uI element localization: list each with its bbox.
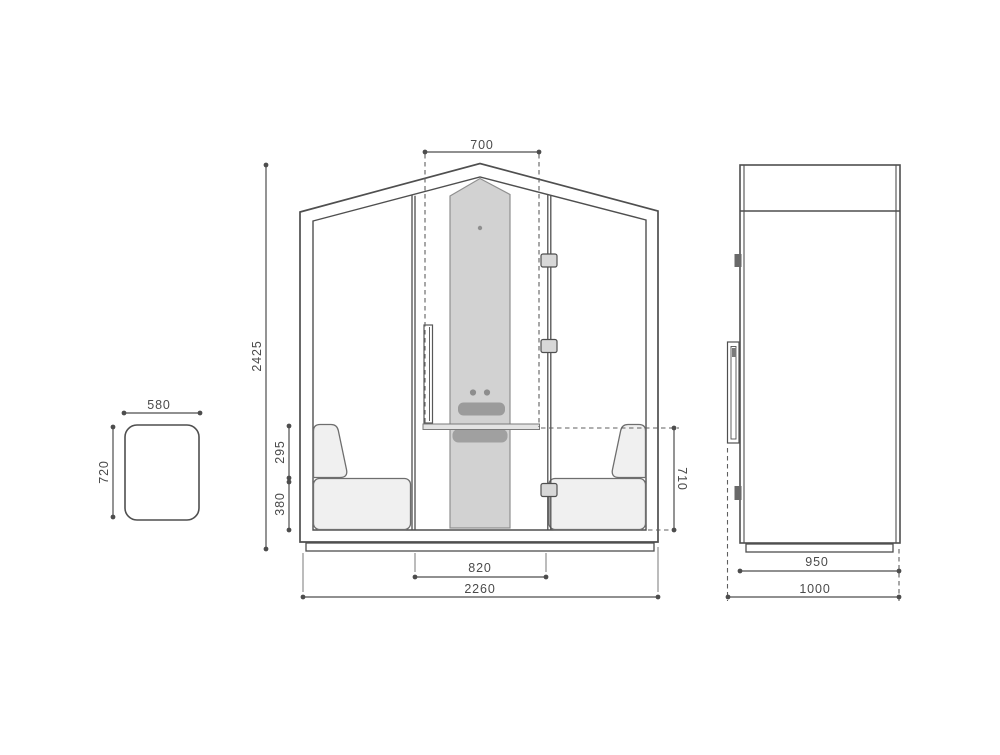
panel-button-dot	[470, 389, 476, 395]
side-view	[728, 165, 901, 552]
control-panel	[458, 403, 505, 416]
dim-2260	[301, 595, 661, 600]
hinge-icon	[541, 340, 557, 353]
side-frame	[740, 165, 900, 543]
hinge-icon	[735, 254, 742, 267]
dim-950	[738, 569, 902, 574]
under-table-tray	[453, 429, 508, 443]
dim-380	[287, 478, 292, 532]
dim-720	[111, 425, 116, 520]
dim-820	[413, 575, 549, 580]
door-lock-dot	[478, 226, 482, 230]
dim-710	[672, 426, 677, 533]
dim-2425	[264, 163, 269, 552]
stool-top-view	[125, 425, 199, 520]
table-shelf	[423, 424, 540, 430]
side-door-handle	[728, 342, 740, 443]
dim-580	[122, 411, 203, 416]
center-door-panel	[450, 179, 510, 529]
seat-cushion-right	[549, 479, 646, 530]
dim-295	[287, 424, 292, 481]
hinge-icon	[735, 486, 742, 500]
front-view	[300, 164, 658, 552]
front-base-plinth	[306, 543, 654, 551]
technical-drawing-canvas: 700 2425 295 380 710 820 2260 580 720 95…	[0, 0, 1000, 755]
panel-button-dot	[484, 389, 490, 395]
solid-extension-ticks	[303, 547, 658, 592]
dim-700	[423, 150, 542, 155]
hinge-icon	[541, 254, 557, 267]
pod-dimension-drawing	[0, 0, 1000, 755]
hinge-icon	[541, 484, 557, 497]
side-base-plinth	[746, 544, 893, 552]
dim-1000	[726, 595, 902, 600]
seat-cushion-left	[314, 479, 411, 530]
